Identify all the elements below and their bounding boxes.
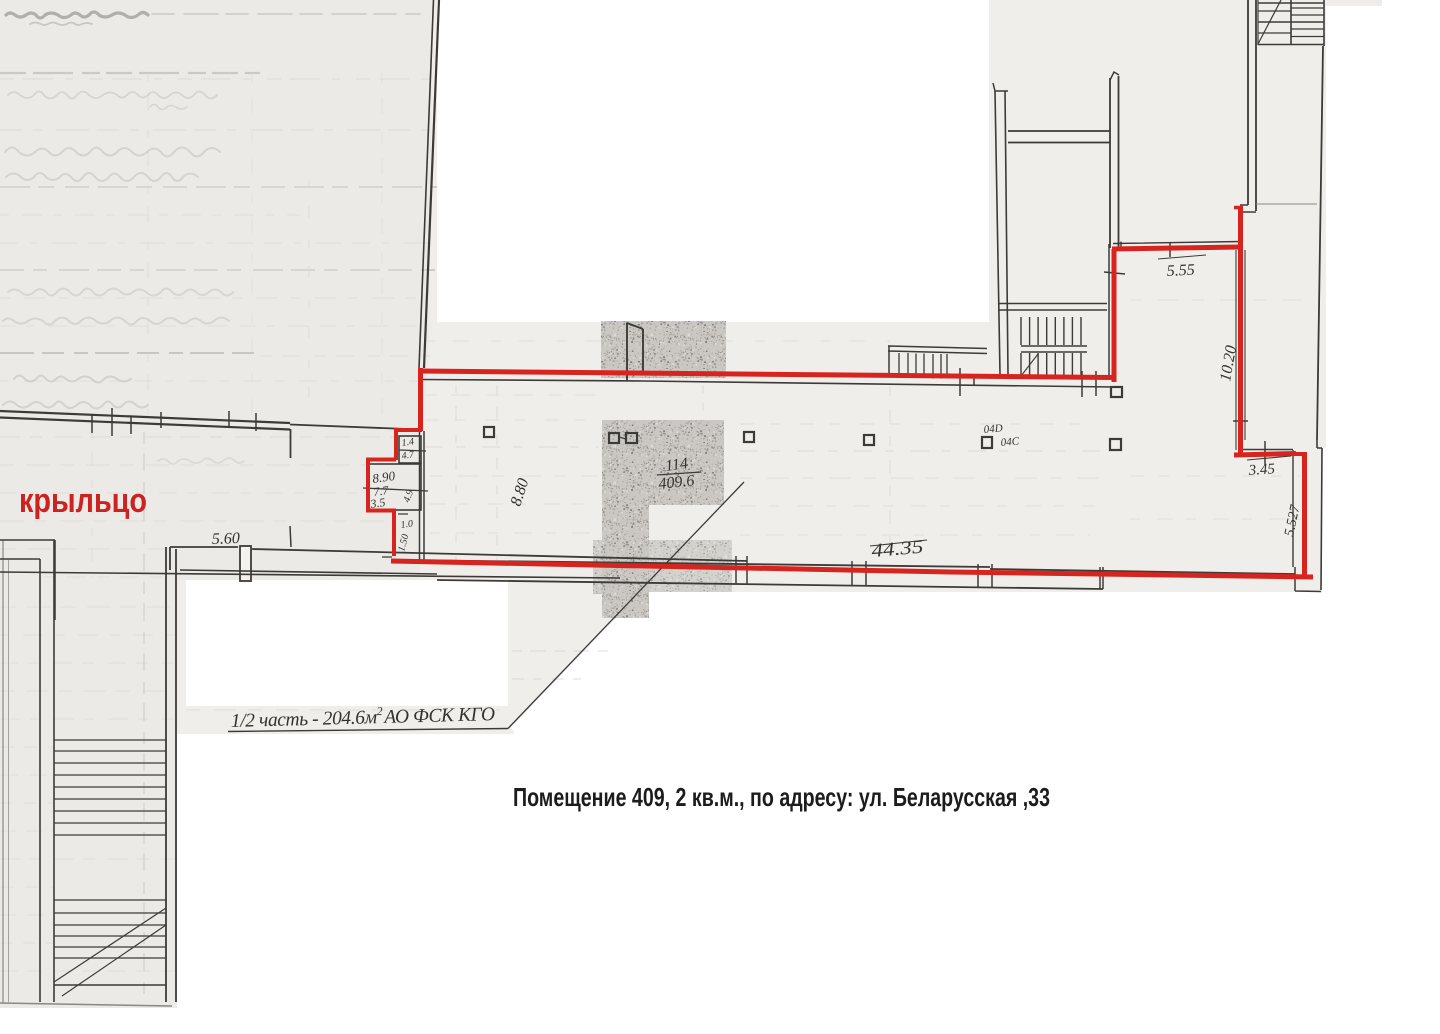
svg-text:крыльцо: крыльцо xyxy=(19,482,147,520)
svg-text:1.4: 1.4 xyxy=(401,436,415,449)
svg-text:3.45: 3.45 xyxy=(1247,461,1276,479)
svg-text:5.55: 5.55 xyxy=(1166,262,1195,280)
svg-text:04D: 04D xyxy=(983,422,1003,436)
svg-text:Помещение 409, 2 кв.м., по адр: Помещение 409, 2 кв.м., по адресу: ул. Б… xyxy=(513,782,1050,812)
svg-text:1.0: 1.0 xyxy=(400,518,414,531)
svg-text:5.60: 5.60 xyxy=(212,530,241,548)
svg-text:04C: 04C xyxy=(1000,435,1020,449)
svg-text:114: 114 xyxy=(664,455,689,475)
svg-text:3.5: 3.5 xyxy=(368,495,386,511)
